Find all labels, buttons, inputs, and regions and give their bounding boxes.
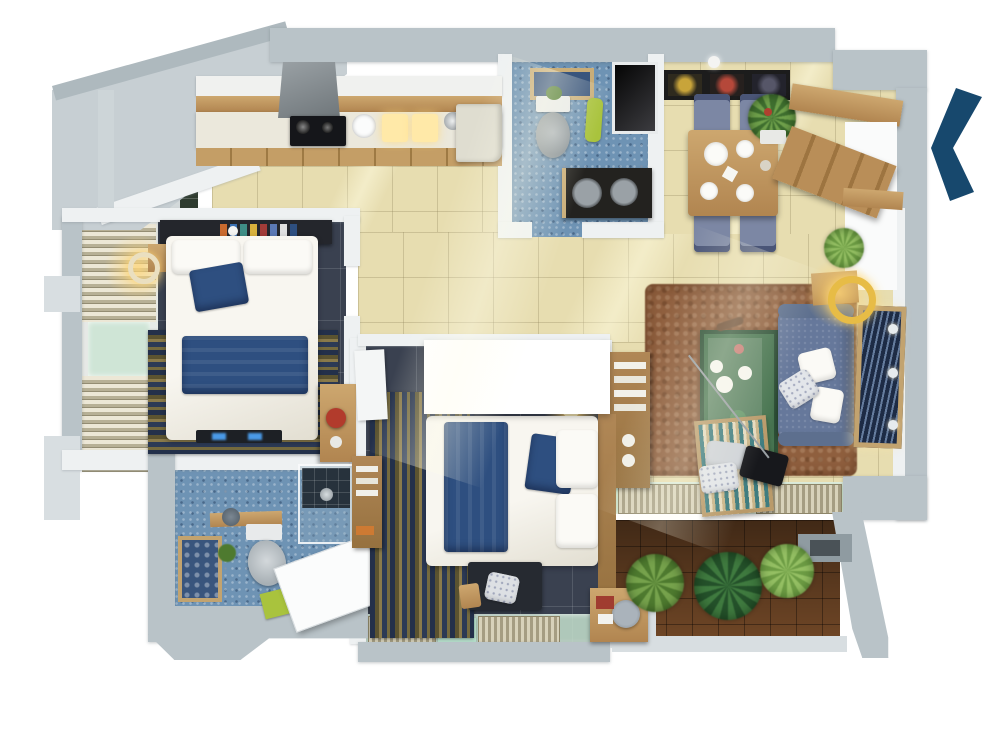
table-vase xyxy=(734,344,744,354)
vessel-sink xyxy=(572,178,602,208)
bookshelf-books xyxy=(614,362,646,369)
panel-knob xyxy=(888,324,898,334)
bookshelf-books xyxy=(614,404,646,411)
dining-chair xyxy=(694,212,730,252)
balcony-bush-light xyxy=(760,544,814,598)
kitchen-upper-cabinets xyxy=(196,76,502,96)
toilet-bowl xyxy=(536,112,570,158)
outer-wall-top xyxy=(270,28,835,62)
outer-wall-left-wing xyxy=(98,90,114,212)
dinner-plate xyxy=(736,184,754,202)
bookshelf xyxy=(610,352,650,488)
toilet-plant xyxy=(546,86,562,100)
cooktop-burner xyxy=(296,120,310,134)
ceiling-lamp xyxy=(708,56,720,68)
bookshelf-jar xyxy=(622,454,635,467)
balcony-wall-recess-inner xyxy=(810,540,840,556)
teapot xyxy=(760,160,771,171)
lounge-pillow-floral xyxy=(698,461,740,494)
bookshelf-books xyxy=(614,390,646,397)
panel-knob xyxy=(888,420,898,430)
balcony-palm xyxy=(626,554,684,612)
shelf-books xyxy=(356,478,378,484)
desk-item xyxy=(330,436,342,448)
table-plate xyxy=(716,376,733,393)
outer-wall-top-right xyxy=(833,50,927,90)
bookshelf-books xyxy=(614,376,646,383)
bed-pillow xyxy=(556,430,598,488)
sofa-armrest xyxy=(778,432,854,446)
media-screen-glow xyxy=(212,433,226,440)
living-corner-plant xyxy=(824,228,864,268)
bathroom-top-wall-bottom xyxy=(582,222,664,238)
outer-wall-left xyxy=(62,216,82,470)
wardrobe-overhang xyxy=(424,340,610,414)
balcony-bush xyxy=(694,552,762,620)
dining-chair xyxy=(694,94,730,134)
range-hood xyxy=(278,62,340,118)
cutting-board-lit xyxy=(412,114,438,142)
panel-knob xyxy=(888,368,898,378)
bed-pillow xyxy=(244,240,312,274)
bath-plant xyxy=(218,544,236,562)
kitchen-sink xyxy=(352,114,376,138)
table-plate xyxy=(738,366,752,380)
bedside-lamp xyxy=(128,252,160,284)
basket xyxy=(458,583,481,610)
duct-shaft xyxy=(612,62,658,134)
walkway-board xyxy=(618,484,704,514)
shelf-books xyxy=(356,466,378,472)
fridge xyxy=(456,104,502,162)
wall-pillar xyxy=(44,276,80,312)
shower-head xyxy=(320,488,333,501)
window-glass-panel xyxy=(88,322,150,376)
cooktop-burner xyxy=(322,122,333,133)
ring-floor-lamp xyxy=(828,276,876,324)
bathroom-top-wall-bottom xyxy=(498,222,532,238)
bath-sink xyxy=(222,508,240,526)
shelf-item-orange xyxy=(356,526,374,535)
bookshelf-jar xyxy=(622,434,635,447)
headboard-cup xyxy=(228,226,238,236)
blue-blanket xyxy=(444,422,508,552)
floor-plan-canvas xyxy=(0,0,1000,750)
blue-blanket xyxy=(182,336,308,394)
chevron-left-icon[interactable] xyxy=(928,84,988,206)
media-console xyxy=(196,430,282,443)
cutting-board-lit xyxy=(382,114,408,142)
bath-wall-picture xyxy=(178,536,222,602)
dinner-plate xyxy=(700,182,718,200)
towel-green xyxy=(584,97,603,142)
wall-pillar xyxy=(44,436,80,520)
bathroom-door-threshold xyxy=(532,224,582,237)
bed-headboard xyxy=(598,414,616,612)
media-screen-glow xyxy=(248,433,262,440)
wall-art-panel xyxy=(854,305,907,449)
table-plate xyxy=(710,360,723,373)
plant-pot xyxy=(760,130,786,144)
bedroom-left-right-wall xyxy=(344,216,360,266)
dining-chair xyxy=(740,212,776,252)
vessel-sink xyxy=(610,178,638,206)
red-book xyxy=(596,596,614,609)
dinner-plate xyxy=(704,142,728,166)
white-wall-panel xyxy=(354,349,388,420)
bedroom-center-bottom-wall xyxy=(358,642,610,662)
note-pad xyxy=(598,614,613,624)
desk-chair-red xyxy=(326,408,346,428)
chevron-left-shape[interactable] xyxy=(931,88,982,201)
shelf-books xyxy=(356,490,378,496)
walkway-board xyxy=(478,616,560,644)
toilet-tank xyxy=(246,524,282,540)
bed-pillow xyxy=(556,494,598,548)
dining-plant-berries xyxy=(764,108,772,116)
dinner-plate xyxy=(736,140,754,158)
